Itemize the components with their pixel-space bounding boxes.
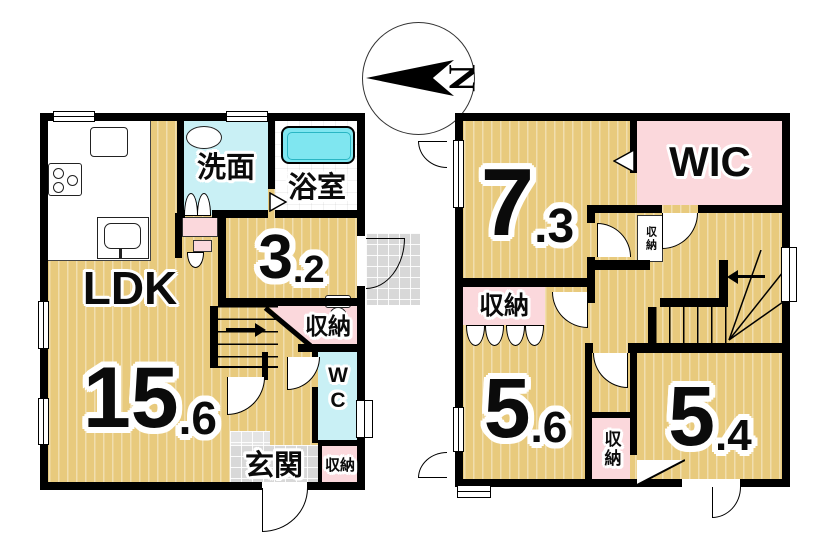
window [38,301,49,349]
casement-window-arc [418,452,447,478]
label-ldk: LDK [55,253,205,323]
door-arc [662,213,698,249]
washroom-cabinet-small [193,240,212,252]
wall [660,298,727,307]
window [53,111,95,122]
burner-icon [53,182,64,193]
label-closet-tiny: 収納 [638,217,662,261]
balcony-door-arc [712,487,741,518]
burner-icon [53,168,64,179]
washroom-cabinet [182,217,218,237]
hall-door-arc [552,292,588,328]
wall [318,446,322,487]
label-room-5-6: 5.6 [463,343,588,473]
wall [719,260,728,307]
door-opening [682,479,740,487]
label-room-5-4: 5.4 [640,358,780,473]
window [453,140,464,208]
ldk-size-int: 15 [83,355,179,441]
door-opening [357,236,365,286]
wall [593,260,650,270]
wall [587,205,637,213]
wall [628,343,783,353]
label-room-7-3: 7.3 [465,128,590,278]
wall [590,412,637,418]
floor2-plan: 7.3 WIC 収納 収納 5.6 収納 5.4 [455,113,790,487]
room-7-3-door-arc [597,223,631,257]
bathtub-icon [281,126,355,164]
window [457,485,491,498]
label-washroom: 洗面 [184,141,268,196]
wall [175,213,182,258]
burner-icon [67,175,78,186]
ldk-size-frac: .6 [179,395,217,441]
entrance-door-arc [262,488,308,532]
stairs-2f-winder [727,250,783,343]
floorplan-canvas: N [0,0,840,556]
wall-outer [40,482,365,490]
room-5-4-frac: .4 [715,414,752,458]
stairs-1f-arrowhead-icon [255,323,266,337]
window [356,400,373,438]
room-5-4-int: 5 [668,374,715,458]
kitchen-sink-icon [104,223,141,249]
fridge-icon [90,127,128,157]
casement-window-arc [418,141,447,168]
label-closet-mid: 収納 [298,309,358,343]
room-5-6-frac: .6 [531,406,568,450]
wall [312,387,318,443]
label-closet-mid2: 収納 [592,421,630,477]
label-wc: WC [320,353,356,425]
stairs-2f-arrow [737,275,765,278]
wc-door-arc [287,357,320,390]
wall [455,278,595,287]
wall [698,205,783,213]
wall [262,352,268,380]
wall [630,353,637,455]
label-room-3-2: 3.2 [226,216,357,300]
window [781,247,797,302]
hall-door-arc [593,353,628,388]
room-7-3-frac: .3 [534,203,574,251]
window [226,111,268,122]
label-wic: WIC [640,123,780,201]
window [38,398,49,445]
compass-north-label: N [440,64,484,91]
wall [268,113,275,189]
stairs-2f [655,307,727,343]
floor1-plan: LDK 15.6 洗面 浴室 3.2 収納 WC 玄関 収納 [40,113,365,490]
wall [177,113,184,218]
bathtub-inner [287,132,351,160]
stove-icon [48,163,82,196]
label-bathroom: 浴室 [277,163,357,213]
room-3-2-int: 3 [258,227,292,289]
wall [218,218,226,306]
wall [648,307,655,348]
label-closet-entrance: 収納 [323,449,357,481]
wic-folding-door-icon [613,149,635,173]
wall-outer [455,113,790,121]
label-ldk-size: 15.6 [55,328,245,468]
room-5-6-int: 5 [484,366,531,450]
label-entrance: 玄関 [232,447,316,485]
label-closet-left: 収納 [463,289,545,323]
room-3-2-frac: .2 [293,251,325,289]
room-7-3-int: 7 [481,155,534,251]
stairs-2f-arrowhead-icon [727,270,738,284]
